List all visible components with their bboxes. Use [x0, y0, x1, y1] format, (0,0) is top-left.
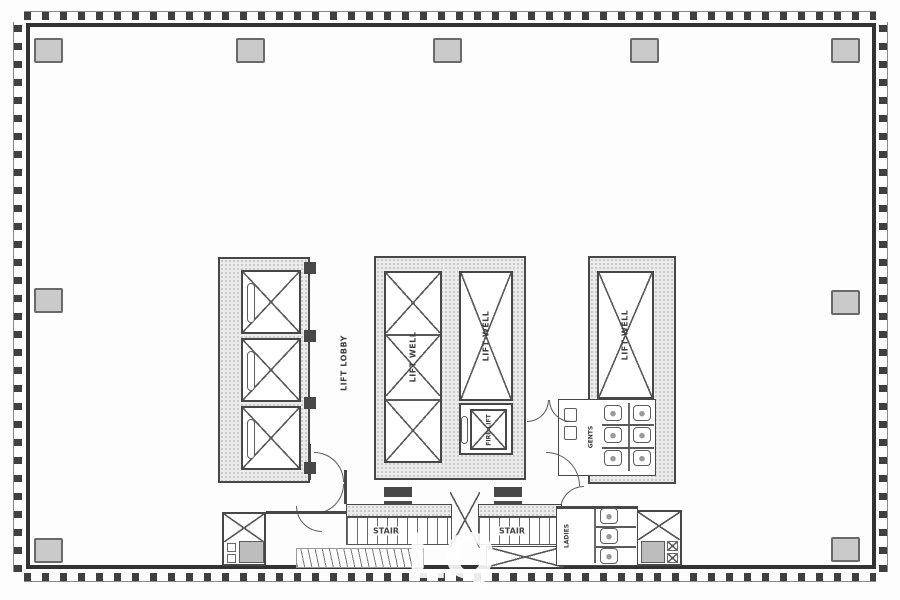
lift-door-panel [461, 416, 468, 444]
lift-car [241, 338, 301, 402]
perimeter-mullion-band-right [879, 22, 888, 572]
wc-icon [600, 508, 618, 524]
lift-door-panel [247, 419, 255, 459]
lift-door-panel [247, 283, 255, 323]
structural-column [34, 538, 63, 563]
stall-partition [602, 424, 654, 426]
equipment-unit [239, 541, 264, 563]
lift-car [241, 406, 301, 470]
lift-well-label: LIFT WELL [409, 332, 418, 383]
structural-column [831, 38, 860, 63]
structural-column [630, 38, 659, 63]
lift-car [241, 270, 301, 334]
void-cross-icon [487, 547, 563, 567]
lift-well-label: LIFT WELL [621, 310, 630, 361]
riser-cell [667, 553, 678, 563]
shaft-divider [386, 399, 440, 401]
service-shaft [636, 510, 682, 566]
shaft-cross-icon [668, 542, 677, 550]
door-jamb [494, 487, 522, 497]
wc-icon [633, 405, 651, 421]
riser-cell [227, 543, 236, 552]
equipment-unit [641, 541, 665, 563]
lift-door-panel [247, 351, 255, 391]
corridor-wall [266, 511, 346, 514]
door-jamb [384, 487, 412, 497]
structural-column [236, 38, 265, 63]
stair-void [486, 546, 564, 568]
door-jamb [304, 397, 316, 409]
service-shaft [222, 512, 266, 566]
lift-lobby-label: LIFT LOBBY [340, 335, 349, 391]
stall-partition [602, 447, 654, 449]
perimeter-mullion-band-top [24, 11, 876, 20]
structural-column [34, 38, 63, 63]
stall-partition [628, 403, 630, 471]
wc-icon [633, 450, 651, 466]
wc-icon [633, 427, 651, 443]
shaft-cross-icon [668, 554, 677, 562]
door-jamb [304, 262, 316, 274]
stair-landing-wall [478, 504, 562, 517]
structural-column [831, 537, 860, 562]
stall-partition [594, 509, 596, 563]
riser-cell [227, 554, 236, 563]
door-jamb [304, 330, 316, 342]
wc-icon [600, 528, 618, 544]
lift-cross-icon [386, 273, 440, 333]
perimeter-mullion-band-left [13, 22, 22, 572]
riser-cell [667, 541, 678, 551]
corridor-wall [344, 470, 347, 504]
ladies-label: LADIES [564, 524, 571, 548]
urinal-icon [604, 427, 622, 443]
structural-column [34, 288, 63, 313]
urinal-icon [604, 450, 622, 466]
watermark: LQ [406, 526, 494, 588]
basin-icon [564, 426, 577, 440]
fire-lift-label: FIRE LIFT [486, 414, 493, 445]
stair-label: STAIR [371, 527, 401, 536]
shaft-cross-icon [224, 514, 264, 542]
urinal-icon [604, 405, 622, 421]
structural-column [831, 290, 860, 315]
wc-icon [600, 548, 618, 564]
stair-label: STAIR [497, 527, 527, 536]
structural-column [433, 38, 462, 63]
gents-label: GENTS [588, 426, 595, 448]
stair-landing-wall [346, 504, 452, 517]
floor-plan: LIFT LOBBY LIFT WELL LIFT WELL FIRE LIFT… [0, 0, 900, 600]
stair-flight [296, 548, 424, 568]
lift-well-label: LIFT WELL [482, 311, 491, 362]
corridor-wall [308, 444, 311, 480]
lift-cross-icon [386, 400, 440, 461]
shaft-cross-icon [638, 512, 680, 540]
